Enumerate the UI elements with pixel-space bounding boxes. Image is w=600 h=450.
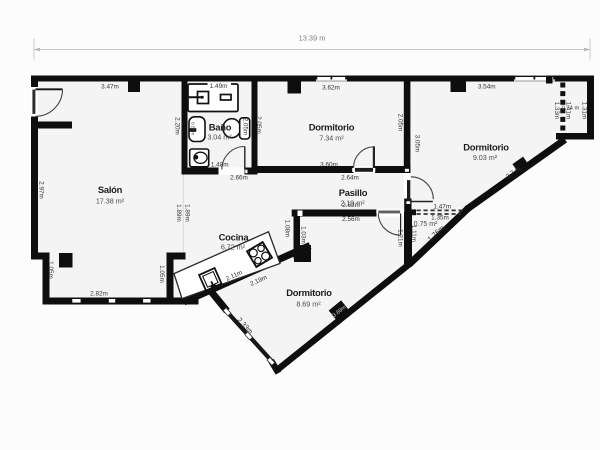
svg-text:1.21m: 1.21m bbox=[396, 229, 403, 247]
svg-text:1.31m: 1.31m bbox=[581, 102, 588, 120]
svg-text:2.82m: 2.82m bbox=[90, 290, 108, 297]
svg-text:1.33m: 1.33m bbox=[553, 102, 560, 120]
svg-text:1.48m: 1.48m bbox=[211, 161, 229, 168]
svg-text:3.62m: 3.62m bbox=[322, 85, 340, 92]
svg-text:9.03 m²: 9.03 m² bbox=[473, 153, 498, 162]
svg-text:3.60m: 3.60m bbox=[320, 161, 338, 168]
svg-text:2.20m: 2.20m bbox=[174, 117, 181, 135]
svg-text:1.89m: 1.89m bbox=[175, 204, 182, 222]
svg-text:3.54m: 3.54m bbox=[478, 84, 496, 91]
svg-text:6.72 m²: 6.72 m² bbox=[221, 243, 246, 252]
svg-text:1.89m: 1.89m bbox=[183, 204, 190, 222]
svg-text:3.04 m²: 3.04 m² bbox=[207, 133, 232, 142]
svg-text:2.66m: 2.66m bbox=[230, 175, 248, 182]
svg-text:3.47m: 3.47m bbox=[101, 84, 119, 91]
svg-text:2.05m: 2.05m bbox=[255, 116, 262, 134]
svg-text:Salón: Salón bbox=[98, 184, 123, 195]
svg-text:2.05m: 2.05m bbox=[396, 114, 403, 132]
svg-text:1.49m: 1.49m bbox=[210, 83, 228, 90]
svg-text:Baño: Baño bbox=[209, 122, 232, 133]
svg-text:8.69 m²: 8.69 m² bbox=[296, 300, 321, 309]
svg-text:17.38 m²: 17.38 m² bbox=[96, 197, 125, 206]
svg-text:1.41m: 1.41m bbox=[565, 102, 572, 120]
svg-text:2.64m: 2.64m bbox=[341, 175, 359, 182]
svg-text:Dormitorio: Dormitorio bbox=[309, 122, 355, 133]
svg-text:1.05m: 1.05m bbox=[158, 265, 165, 283]
svg-text:Pasillo: Pasillo bbox=[339, 187, 368, 198]
svg-text:7.34 m²: 7.34 m² bbox=[319, 134, 344, 143]
svg-text:1.11m: 1.11m bbox=[410, 225, 417, 242]
svg-text:Dormitorio: Dormitorio bbox=[463, 142, 509, 153]
svg-text:2.63m: 2.63m bbox=[342, 202, 360, 209]
svg-text:Cocina: Cocina bbox=[219, 232, 250, 243]
svg-text:1.47m: 1.47m bbox=[433, 203, 451, 210]
svg-text:3.05m: 3.05m bbox=[414, 135, 421, 153]
svg-text:1.03m: 1.03m bbox=[299, 226, 306, 244]
svg-text:0.55m: 0.55m bbox=[189, 122, 195, 135]
svg-text:1.05m: 1.05m bbox=[47, 261, 54, 279]
svg-text:2.97m: 2.97m bbox=[38, 181, 45, 199]
svg-text:1.08m: 1.08m bbox=[284, 220, 291, 238]
svg-text:Dormitorio: Dormitorio bbox=[286, 287, 332, 298]
svg-text:13.39 m: 13.39 m bbox=[299, 34, 326, 43]
svg-text:2.05m: 2.05m bbox=[241, 118, 248, 136]
svg-text:2.56m: 2.56m bbox=[342, 216, 360, 223]
